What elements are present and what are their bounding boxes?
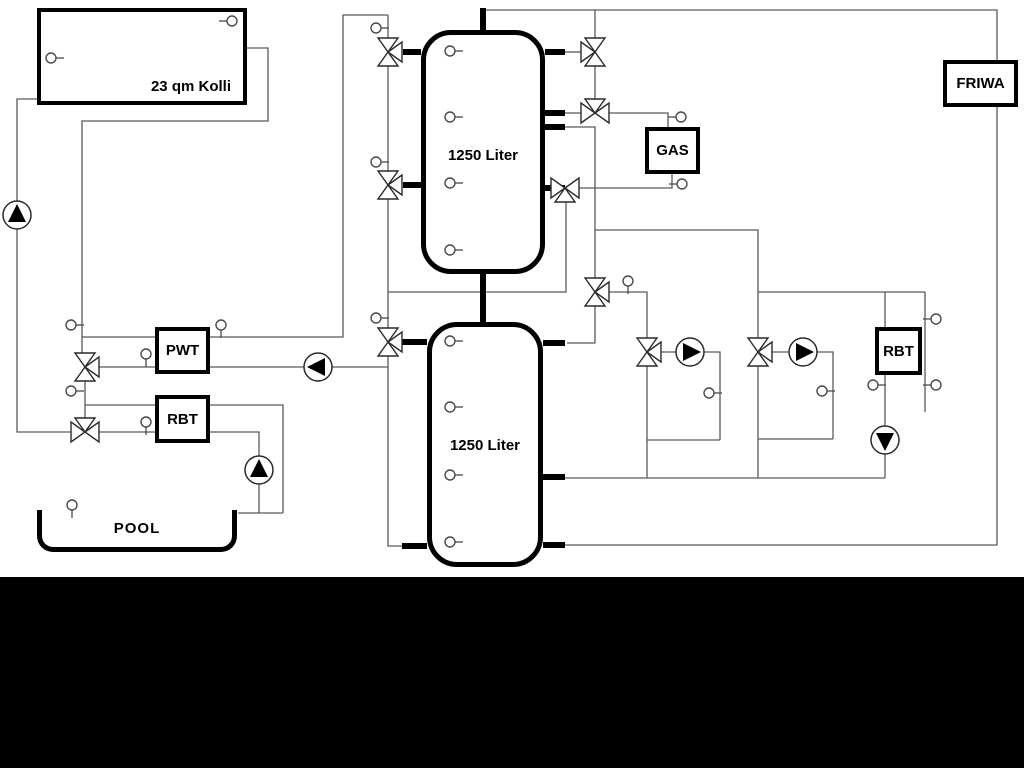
sensor-bulb — [66, 320, 76, 330]
three-way-valve-icon — [378, 38, 402, 66]
valve-port-triangle — [585, 292, 605, 306]
friwa-station-box: FRIWA — [943, 60, 1018, 107]
pump-flow-triangle — [250, 459, 268, 477]
valve-port-triangle — [85, 422, 99, 442]
valve-port-triangle — [585, 38, 605, 52]
sensor-bulb — [66, 386, 76, 396]
pump-body — [676, 338, 704, 366]
buffer-tank-bottom-label: 1250 Liter — [432, 437, 538, 454]
sensor-bulb — [676, 112, 686, 122]
temperature-sensor-icon — [66, 386, 84, 396]
valve-port-triangle — [71, 422, 85, 442]
sensor-bulb — [216, 320, 226, 330]
bottom-black-band — [0, 577, 1024, 768]
temperature-sensor-icon — [704, 388, 722, 398]
pump-flow-triangle — [307, 358, 325, 376]
valve-port-triangle — [388, 175, 402, 195]
three-way-valve-icon — [71, 418, 99, 442]
buffer-tank-bottom: 1250 Liter — [427, 322, 543, 567]
pipe-line — [483, 10, 997, 62]
rbt-right-box: RBT — [875, 327, 922, 375]
pipe-line — [661, 352, 720, 440]
pool-basin: POOL — [37, 510, 237, 552]
temperature-sensor-icon — [141, 417, 151, 435]
pump-icon — [245, 456, 273, 484]
pipe-line — [772, 352, 833, 439]
valve-port-triangle — [378, 185, 398, 199]
valve-port-triangle — [388, 42, 402, 62]
pump-icon — [304, 353, 332, 381]
temperature-sensor-icon — [216, 320, 226, 338]
pump-body — [789, 338, 817, 366]
rbt-right-label: RBT — [883, 343, 914, 360]
three-way-valve-icon — [378, 328, 402, 356]
pool-label: POOL — [114, 520, 161, 537]
valve-port-triangle — [75, 367, 95, 381]
valve-port-triangle — [595, 103, 609, 123]
valve-port-triangle — [378, 52, 398, 66]
sensor-bulb — [817, 386, 827, 396]
hydraulic-schematic: 23 qm Kolli 1250 Liter 1250 Liter PWT RB… — [0, 0, 1024, 768]
valve-port-triangle — [748, 352, 768, 366]
three-way-valve-icon — [637, 338, 661, 366]
temperature-sensor-icon — [371, 157, 389, 167]
three-way-valve-icon — [581, 99, 609, 123]
solar-collector-label: 23 qm Kolli — [151, 78, 231, 95]
valve-port-triangle — [85, 357, 99, 377]
three-way-valve-icon — [748, 338, 772, 366]
sensor-bulb — [704, 388, 714, 398]
valve-port-triangle — [388, 332, 402, 352]
solar-collector-box: 23 qm Kolli — [37, 8, 247, 105]
sensor-bulb — [371, 157, 381, 167]
valve-port-triangle — [551, 178, 565, 198]
pump-icon — [3, 201, 31, 229]
pump-icon — [676, 338, 704, 366]
sensor-bulb — [931, 314, 941, 324]
gas-boiler-label: GAS — [656, 142, 689, 159]
pump-flow-triangle — [796, 343, 814, 361]
valve-port-triangle — [555, 188, 575, 202]
valve-port-triangle — [378, 328, 398, 342]
valve-port-triangle — [647, 342, 661, 362]
three-way-valve-icon — [581, 38, 605, 66]
gas-boiler-box: GAS — [645, 127, 700, 174]
valve-port-triangle — [637, 352, 657, 366]
pump-icon — [871, 426, 899, 454]
sensor-bulb — [868, 380, 878, 390]
pwt-heat-exchanger-box: PWT — [155, 327, 210, 374]
pump-flow-triangle — [683, 343, 701, 361]
pipe-line — [17, 99, 72, 432]
temperature-sensor-icon — [923, 314, 941, 324]
pipe-line — [210, 405, 283, 513]
pump-body — [245, 456, 273, 484]
pipe-line — [579, 172, 672, 188]
pump-icon — [789, 338, 817, 366]
temperature-sensor-icon — [371, 313, 389, 323]
pipe-line — [565, 105, 997, 545]
three-way-valve-icon — [551, 178, 579, 202]
rbt-pool-label: RBT — [167, 411, 198, 428]
pipe-line — [595, 230, 758, 338]
valve-port-triangle — [581, 103, 595, 123]
sensor-bulb — [141, 417, 151, 427]
valve-port-triangle — [595, 282, 609, 302]
temperature-sensor-icon — [623, 276, 633, 294]
temperature-sensor-icon — [868, 380, 886, 390]
temperature-sensor-icon — [669, 179, 687, 189]
temperature-sensor-icon — [817, 386, 835, 396]
sensor-bulb — [371, 313, 381, 323]
sensor-bulb — [931, 380, 941, 390]
pwt-label: PWT — [166, 342, 199, 359]
valve-port-triangle — [585, 278, 605, 292]
valve-port-triangle — [585, 99, 605, 113]
valve-port-triangle — [581, 42, 595, 62]
rbt-pool-box: RBT — [155, 395, 210, 443]
pipe-line — [210, 432, 259, 513]
temperature-sensor-icon — [668, 112, 686, 122]
pipe-line — [609, 292, 647, 338]
pump-body — [304, 353, 332, 381]
valve-port-triangle — [378, 171, 398, 185]
temperature-sensor-icon — [371, 23, 389, 33]
valve-port-triangle — [378, 342, 398, 356]
three-way-valve-icon — [585, 278, 609, 306]
sensor-bulb — [371, 23, 381, 33]
sensor-bulb — [623, 276, 633, 286]
temperature-sensor-icon — [141, 349, 151, 367]
three-way-valve-icon — [75, 353, 99, 381]
temperature-sensor-icon — [66, 320, 84, 330]
temperature-sensor-icon — [923, 380, 941, 390]
valve-port-triangle — [637, 338, 657, 352]
pipe-line — [388, 15, 404, 546]
pump-body — [871, 426, 899, 454]
valve-port-triangle — [585, 52, 605, 66]
buffer-tank-top: 1250 Liter — [421, 30, 545, 274]
valve-port-triangle — [758, 342, 772, 362]
valve-port-triangle — [378, 38, 398, 52]
three-way-valve-icon — [378, 171, 402, 199]
friwa-label: FRIWA — [956, 75, 1004, 92]
pump-flow-triangle — [8, 204, 26, 222]
buffer-tank-top-label: 1250 Liter — [426, 147, 540, 164]
valve-port-triangle — [748, 338, 768, 352]
sensor-bulb — [67, 500, 77, 510]
pipe-line — [565, 127, 595, 278]
pump-body — [3, 201, 31, 229]
pipe-line — [567, 306, 595, 343]
pump-flow-triangle — [876, 433, 894, 451]
sensor-bulb — [677, 179, 687, 189]
valve-port-triangle — [75, 353, 95, 367]
valve-port-triangle — [565, 178, 579, 198]
sensor-bulb — [141, 349, 151, 359]
valve-port-triangle — [75, 418, 95, 432]
